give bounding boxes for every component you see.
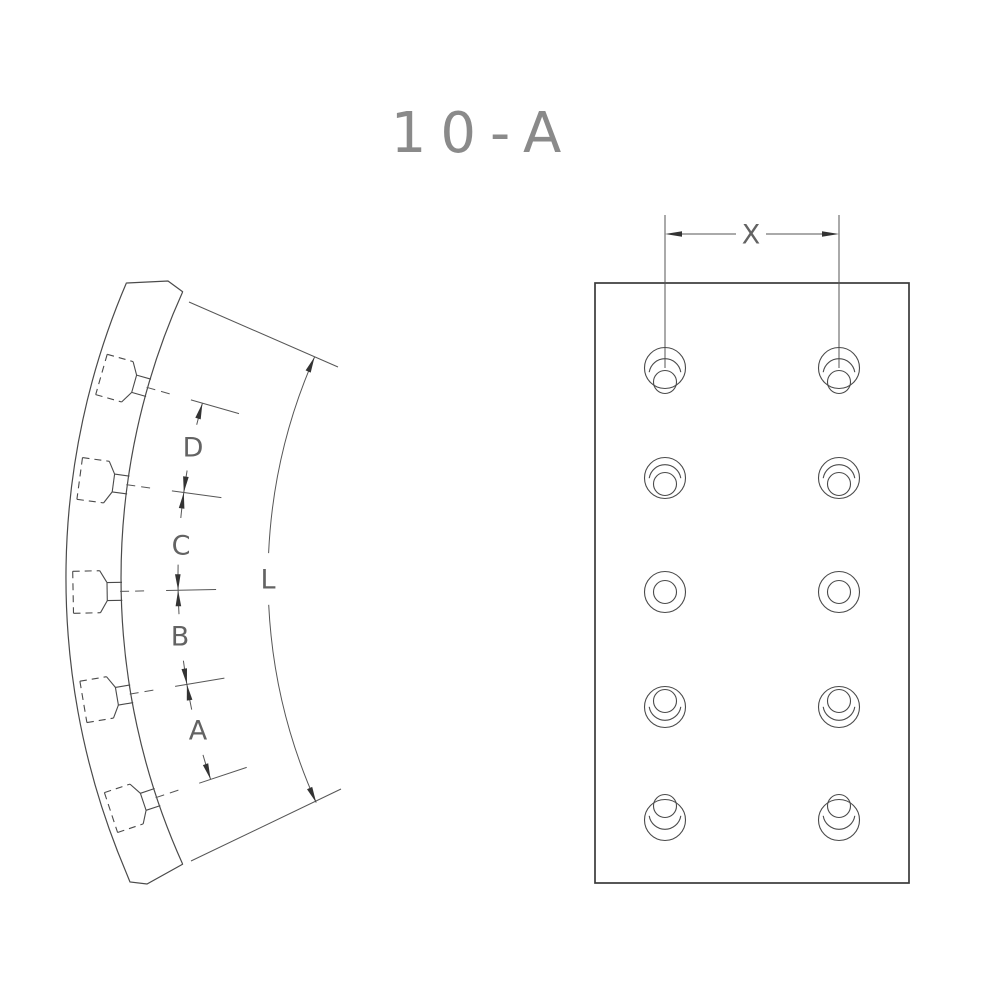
side-view [66, 281, 341, 884]
dim-label-x: X [742, 222, 761, 249]
lining-outline [595, 283, 909, 883]
dim-label-c: C [172, 533, 191, 560]
dim-label-b: B [171, 624, 190, 651]
side-view-rivets [73, 354, 247, 832]
flat-view-holes [645, 348, 860, 841]
drawing-canvas [0, 0, 1000, 1000]
dim-label-a: A [189, 718, 207, 745]
dim-label-d: D [183, 435, 204, 462]
dim-label-l: L [260, 567, 275, 594]
drawing-sheet: 10-A X L D C B A [0, 0, 1000, 1000]
flat-view [595, 215, 909, 883]
